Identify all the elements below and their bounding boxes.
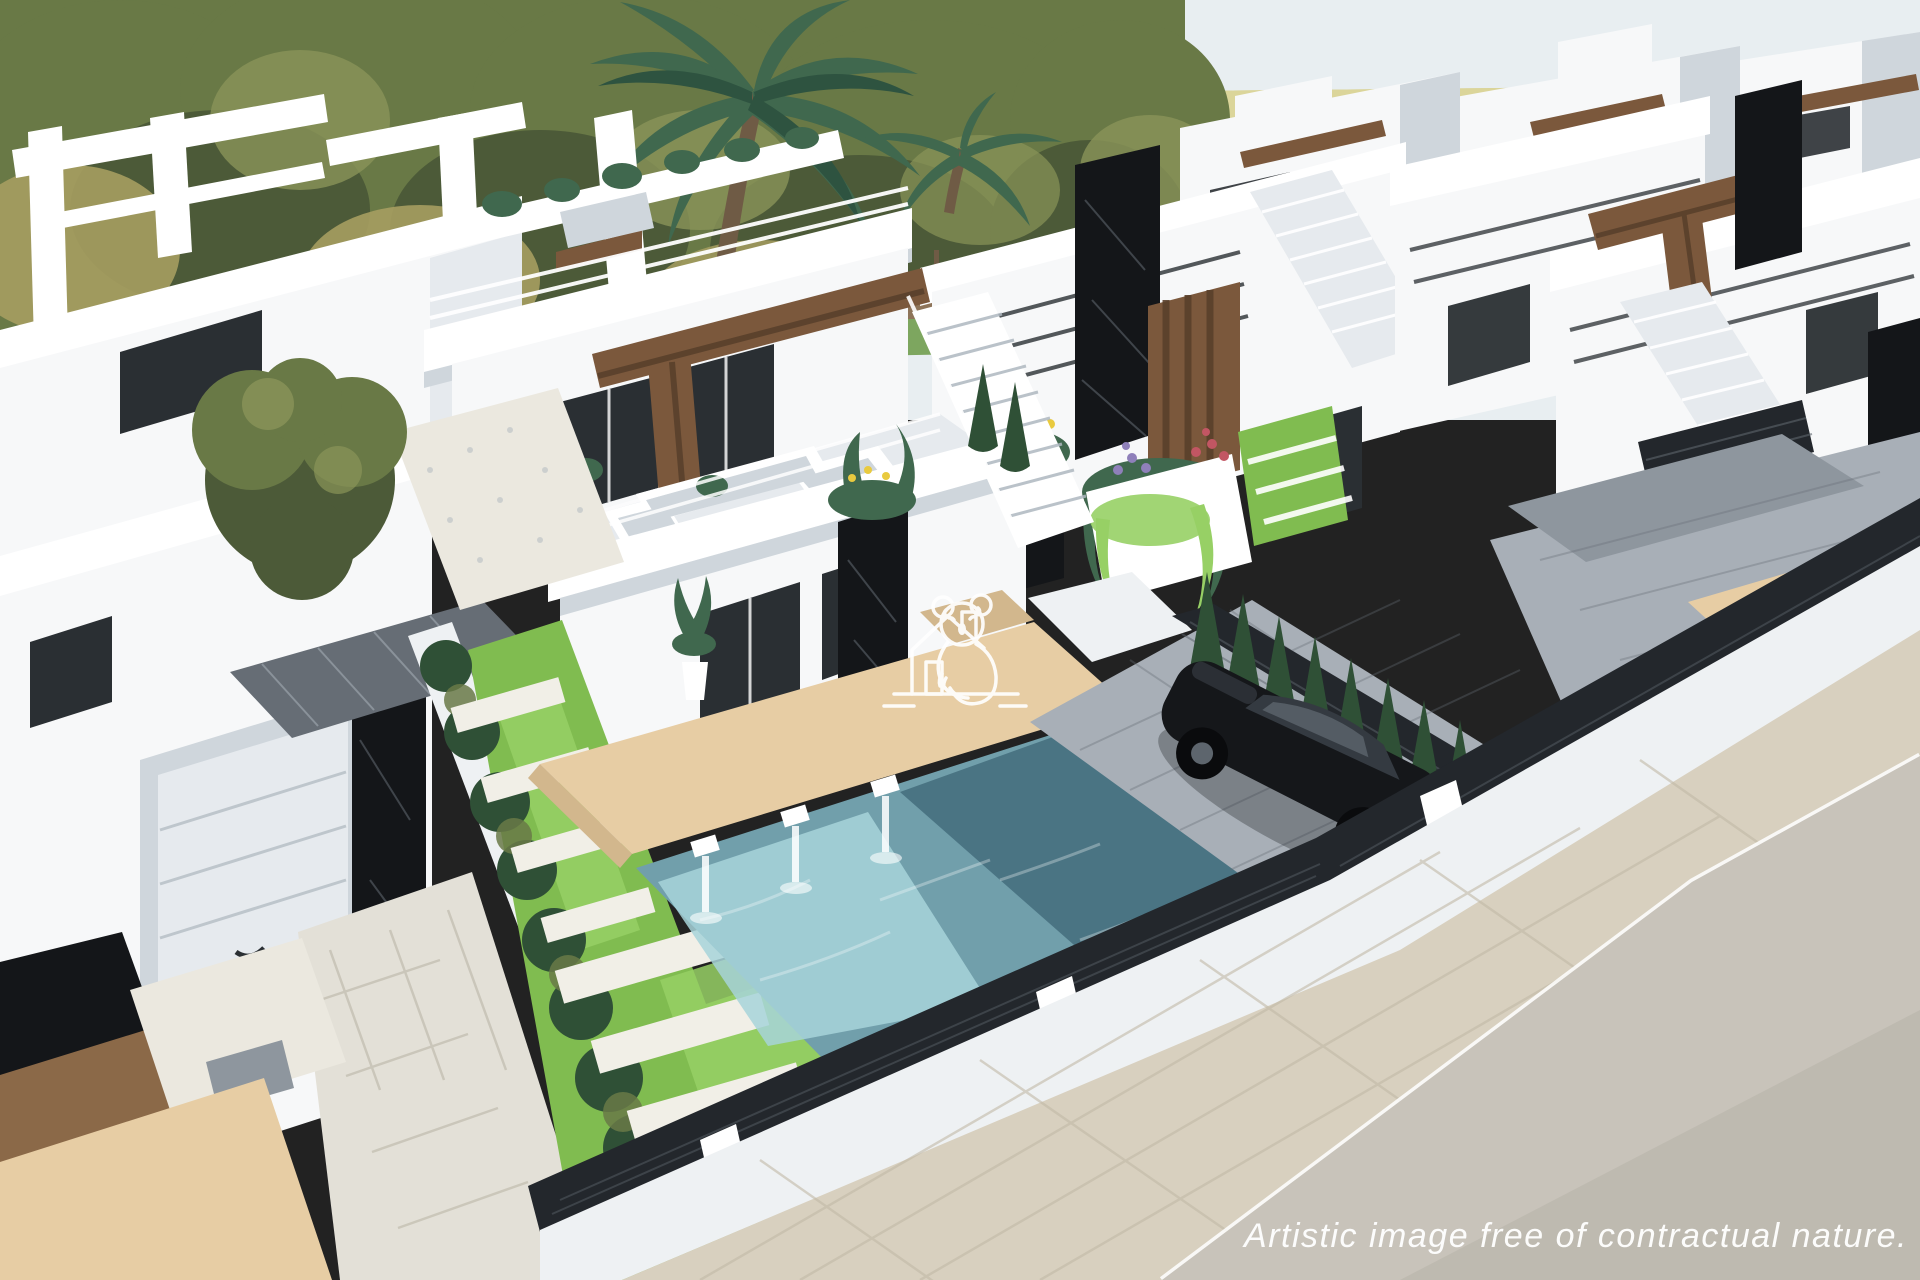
render-canvas: Artistic image free of contractual natur… <box>0 0 1920 1280</box>
caption-text: Artistic image free of contractual natur… <box>1242 1217 1908 1255</box>
